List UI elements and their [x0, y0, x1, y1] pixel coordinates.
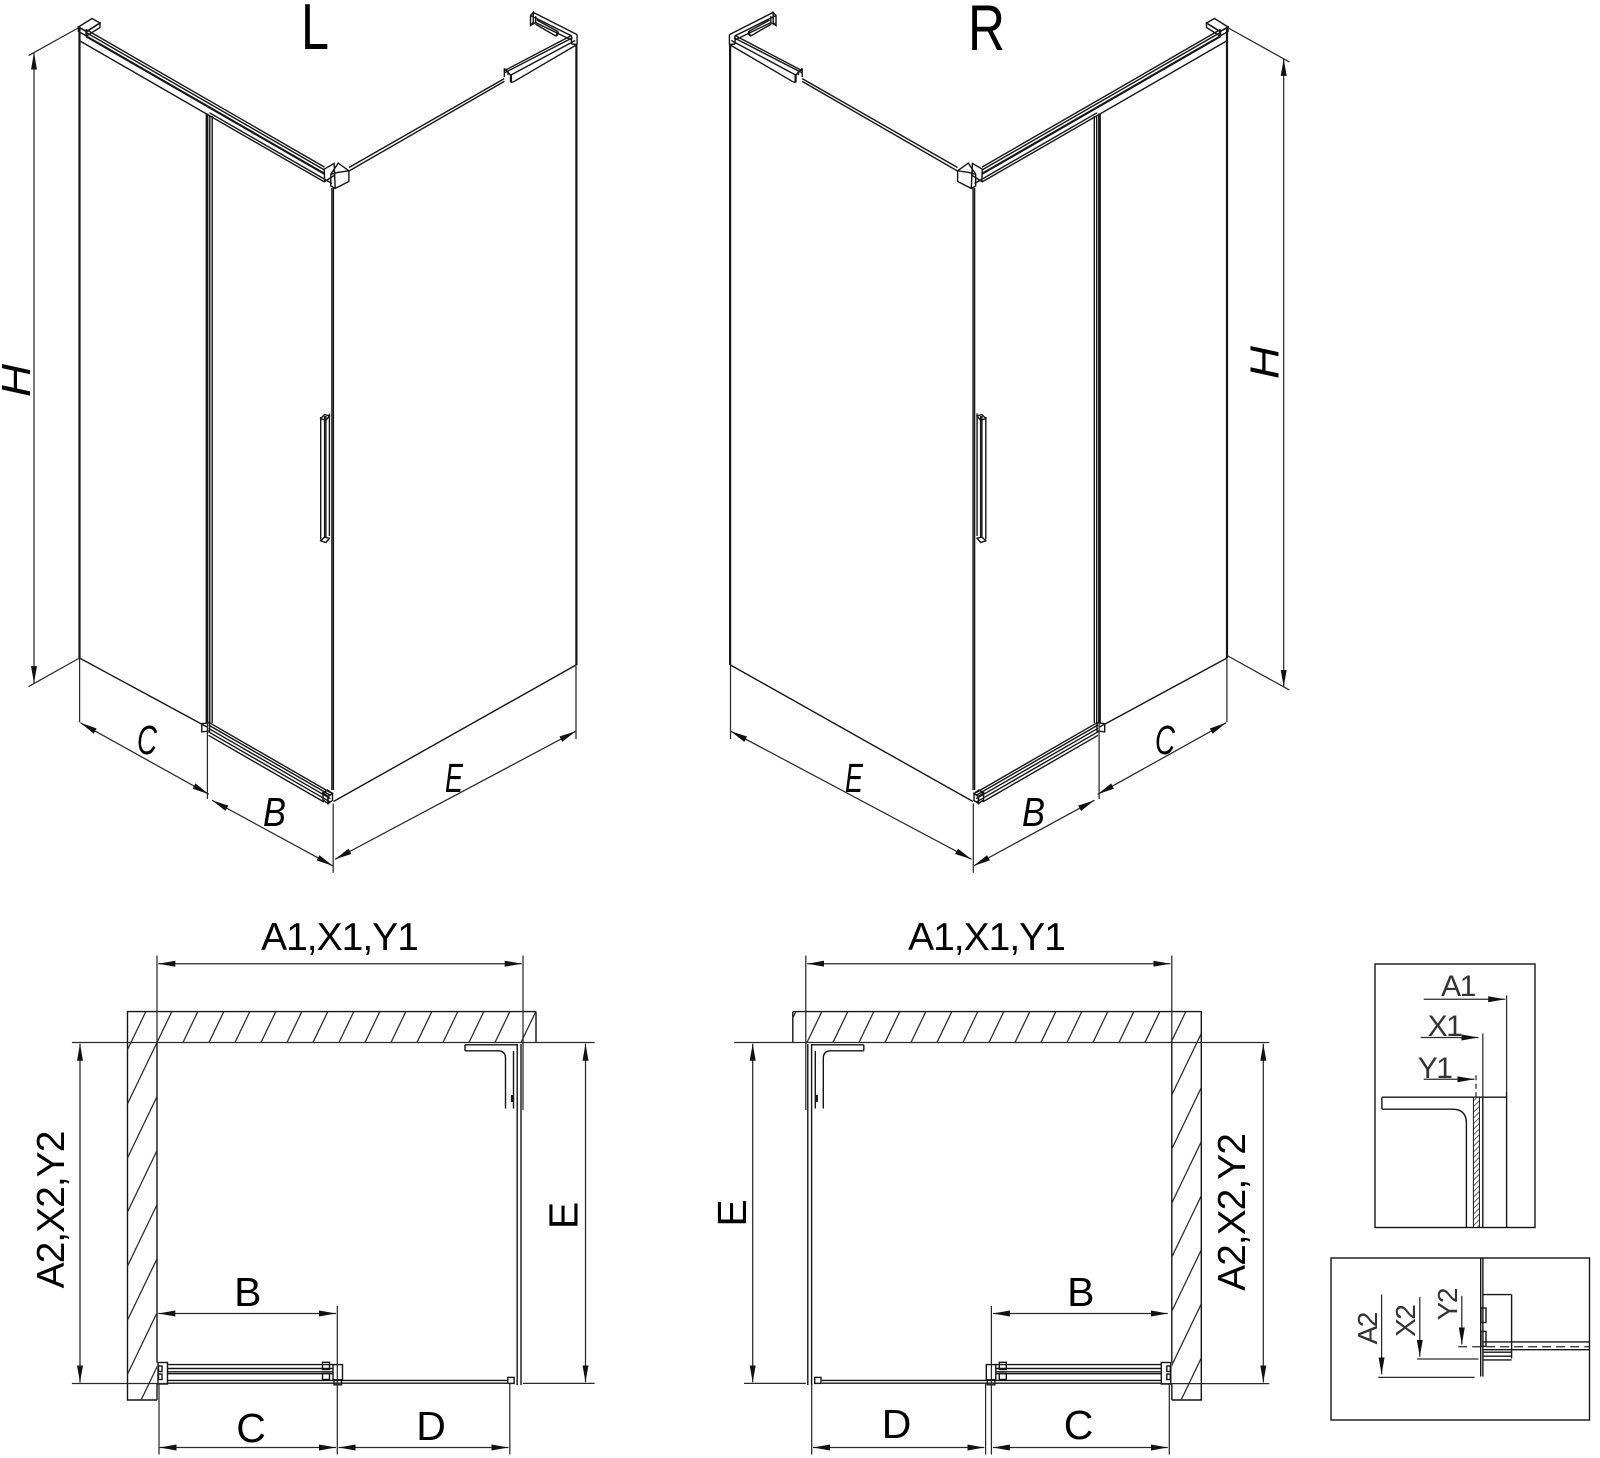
svg-text:B: B	[234, 1269, 261, 1315]
svg-text:A2,X2,Y2: A2,X2,Y2	[1211, 1134, 1254, 1291]
svg-text:X2: X2	[1390, 1305, 1421, 1337]
svg-text:A1: A1	[1441, 970, 1476, 1003]
svg-text:L: L	[301, 0, 329, 63]
svg-text:E: E	[845, 755, 863, 801]
svg-text:B: B	[263, 789, 286, 835]
svg-text:H: H	[1242, 346, 1288, 379]
svg-text:B: B	[1067, 1269, 1094, 1315]
svg-text:Y2: Y2	[1432, 1288, 1463, 1320]
svg-text:H: H	[0, 364, 39, 397]
svg-text:R: R	[968, 0, 1005, 64]
svg-text:C: C	[137, 717, 157, 763]
svg-text:A1,X1,Y1: A1,X1,Y1	[261, 916, 418, 959]
svg-text:E: E	[709, 1199, 755, 1226]
svg-text:E: E	[541, 1202, 587, 1229]
svg-text:A2: A2	[1352, 1312, 1383, 1344]
svg-text:D: D	[882, 1401, 912, 1447]
svg-text:E: E	[445, 755, 463, 801]
svg-text:C: C	[1064, 1402, 1094, 1448]
svg-text:D: D	[416, 1403, 446, 1449]
svg-text:A2,X2,Y2: A2,X2,Y2	[30, 1132, 73, 1289]
svg-text:C: C	[236, 1405, 266, 1451]
svg-text:Y1: Y1	[1418, 1052, 1453, 1085]
svg-text:A1,X1,Y1: A1,X1,Y1	[908, 916, 1065, 959]
svg-text:B: B	[1022, 789, 1045, 835]
svg-text:C: C	[1155, 717, 1175, 763]
svg-text:X1: X1	[1428, 1010, 1463, 1043]
